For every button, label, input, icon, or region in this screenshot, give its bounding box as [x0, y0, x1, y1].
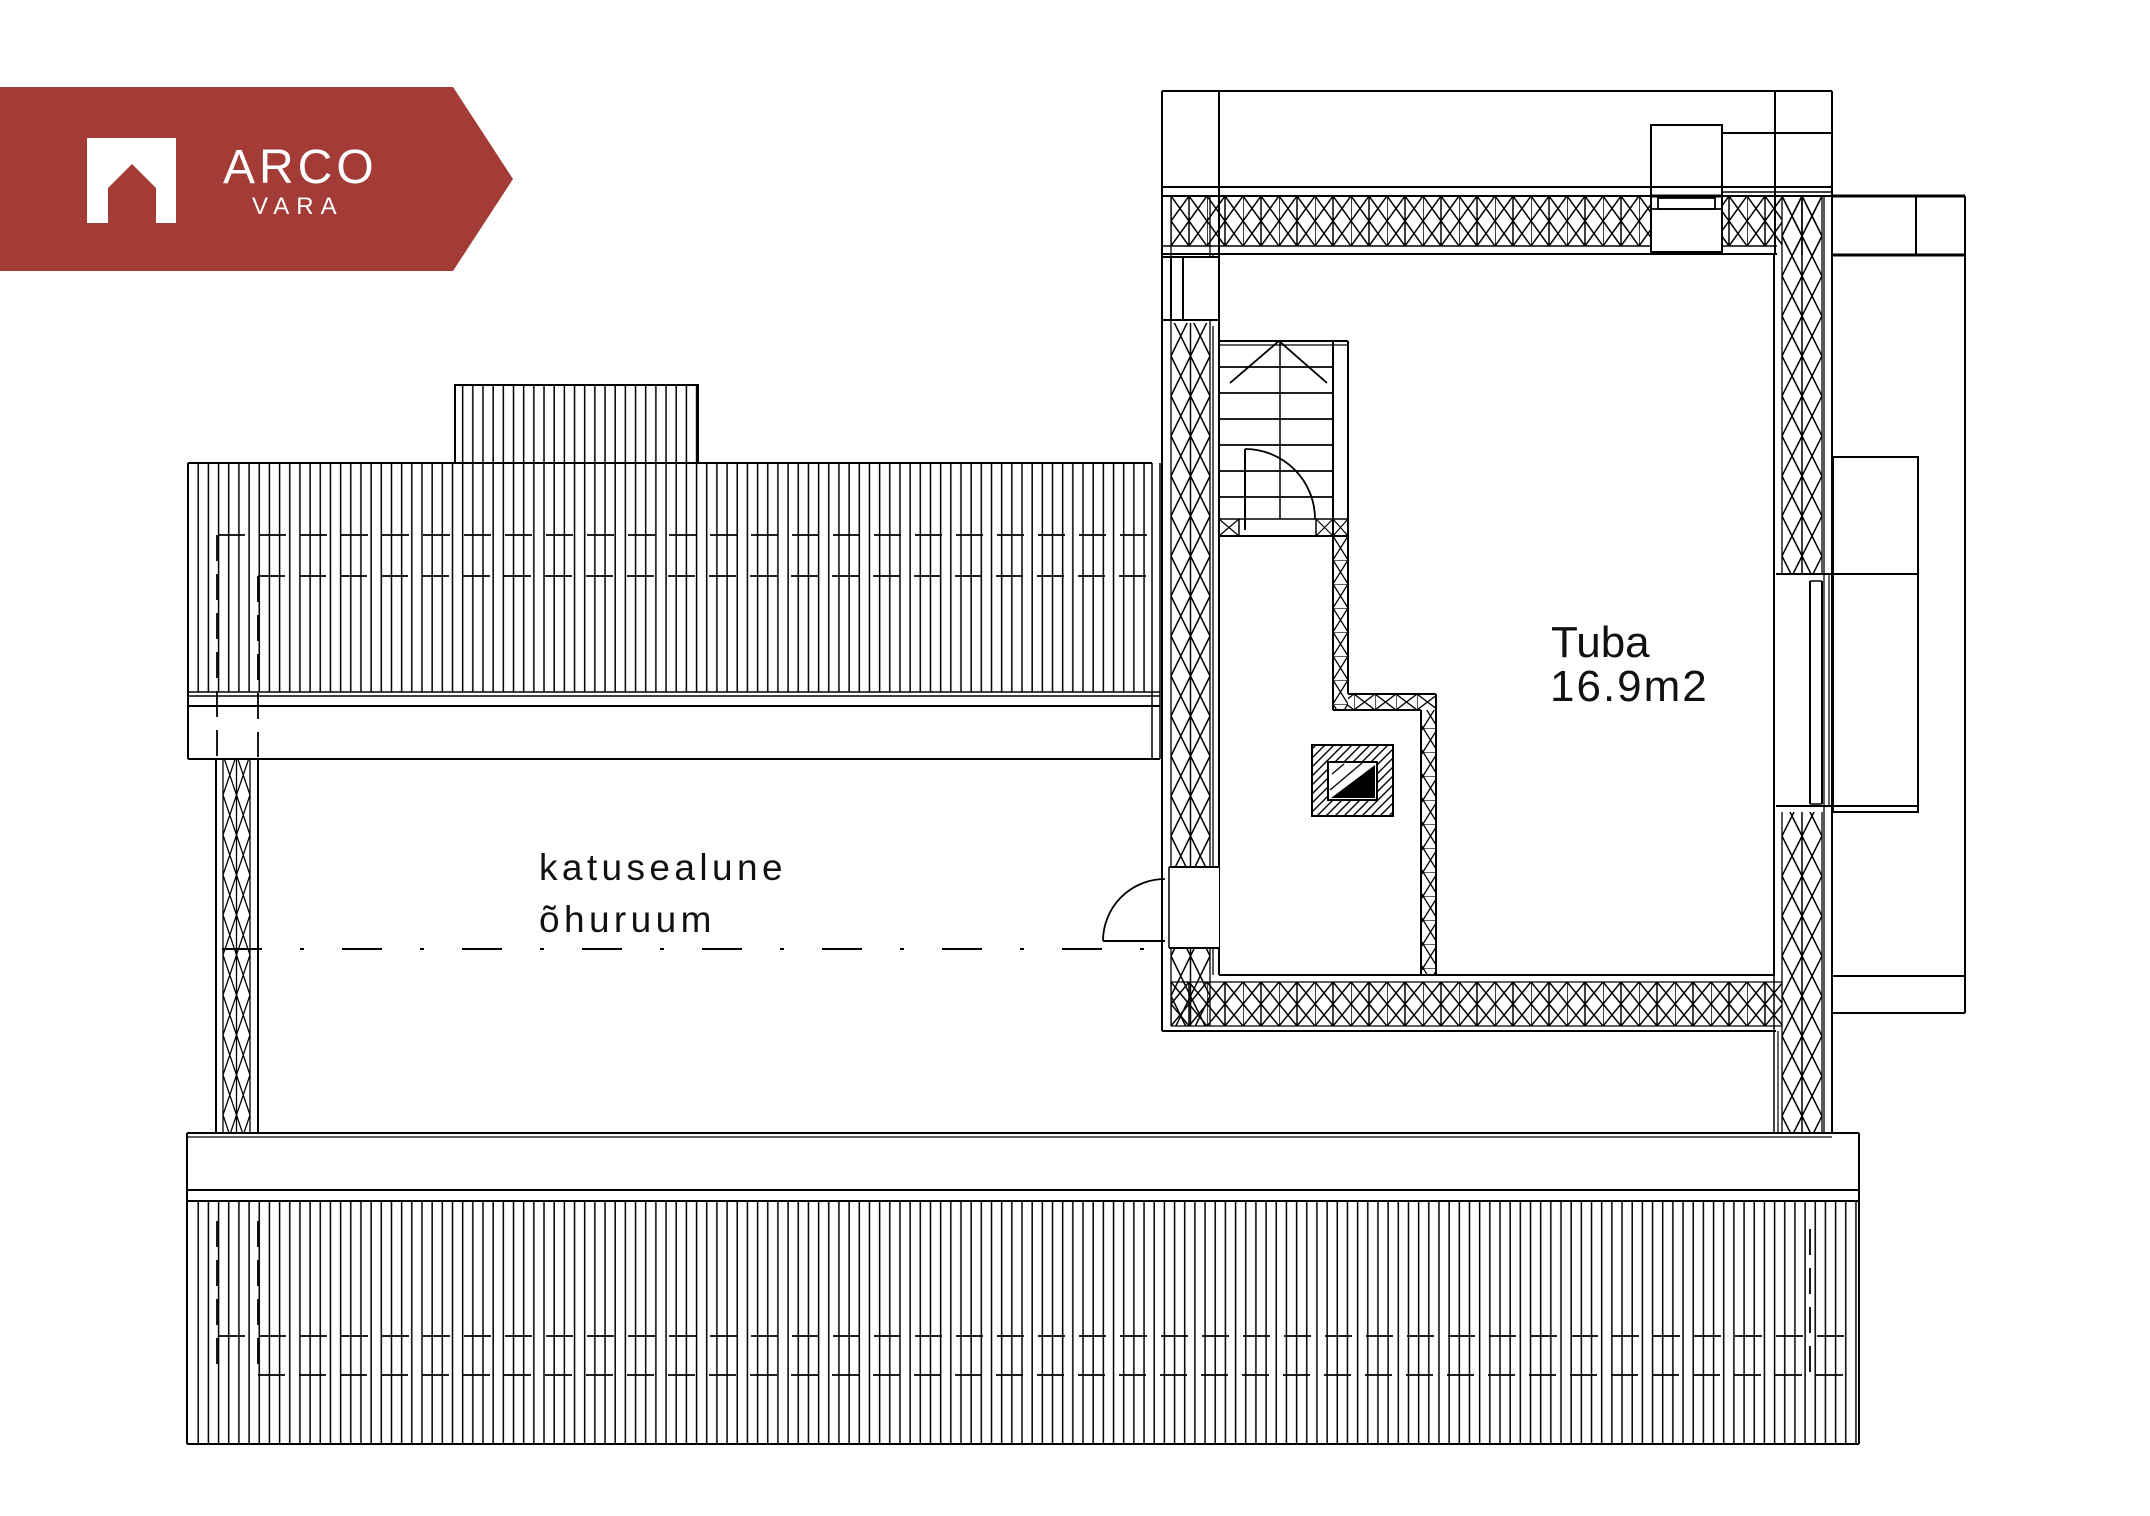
svg-text:õhuruum: õhuruum — [539, 899, 716, 940]
svg-text:ARCO: ARCO — [223, 141, 378, 194]
svg-text:VARA: VARA — [252, 193, 344, 220]
svg-text:katusealune: katusealune — [539, 847, 787, 888]
svg-text:16.9m2: 16.9m2 — [1550, 662, 1709, 711]
svg-text:Tuba: Tuba — [1551, 618, 1650, 667]
